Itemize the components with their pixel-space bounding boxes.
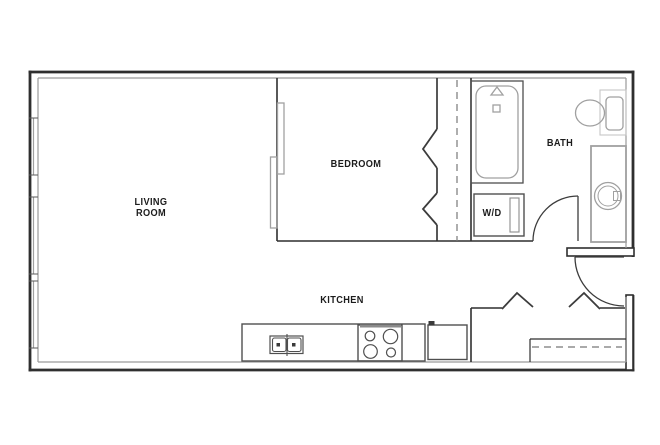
living-room-label: LIVING ROOM xyxy=(128,197,174,219)
bathtub-faucet-icon xyxy=(491,87,503,95)
stove-burner-2 xyxy=(383,329,397,343)
washer-dryer-door xyxy=(510,198,519,232)
bedroom-closet-bifold-icon xyxy=(423,129,437,225)
appliances xyxy=(242,194,524,361)
bath-door-swing-icon xyxy=(533,196,578,241)
bathtub-icon xyxy=(476,86,518,178)
kitchen-sink-drain-right xyxy=(292,343,296,347)
bathtub-drain-icon xyxy=(493,105,500,112)
vanity-sink-icon xyxy=(595,183,622,210)
bathtub-surround xyxy=(471,81,523,183)
kitchen-label: KITCHEN xyxy=(305,295,379,306)
bedroom-sliding-door-panel-1 xyxy=(278,103,285,174)
outer-walls xyxy=(29,71,635,372)
floor-plan-drawing xyxy=(0,0,660,445)
stove-burner-4 xyxy=(387,348,396,357)
floor-plan: LIVING ROOM BEDROOM BATH W/D KITCHEN xyxy=(0,0,660,445)
kitchen-sink-drain-left xyxy=(277,343,281,347)
refrigerator-icon xyxy=(428,325,467,360)
vanity-sink-basin xyxy=(598,186,618,206)
toilet-tank-icon xyxy=(606,97,623,130)
entry-closet-bifold-icon xyxy=(502,293,600,309)
stove-burner-3 xyxy=(364,345,378,359)
refrigerator-handle xyxy=(429,321,435,326)
entry-side-wall xyxy=(626,295,633,370)
bath-label: BATH xyxy=(532,138,587,149)
entry-closet-shelf xyxy=(530,339,626,362)
stove-burner-1 xyxy=(365,331,375,341)
entry-door-swing-icon xyxy=(575,257,624,306)
bath-bottom-wall-band xyxy=(567,248,634,256)
interior-walls xyxy=(277,78,626,362)
bedroom-sliding-door-panel-2 xyxy=(271,157,278,228)
washer-dryer-label: W/D xyxy=(474,208,511,219)
bedroom-label: BEDROOM xyxy=(319,159,393,170)
